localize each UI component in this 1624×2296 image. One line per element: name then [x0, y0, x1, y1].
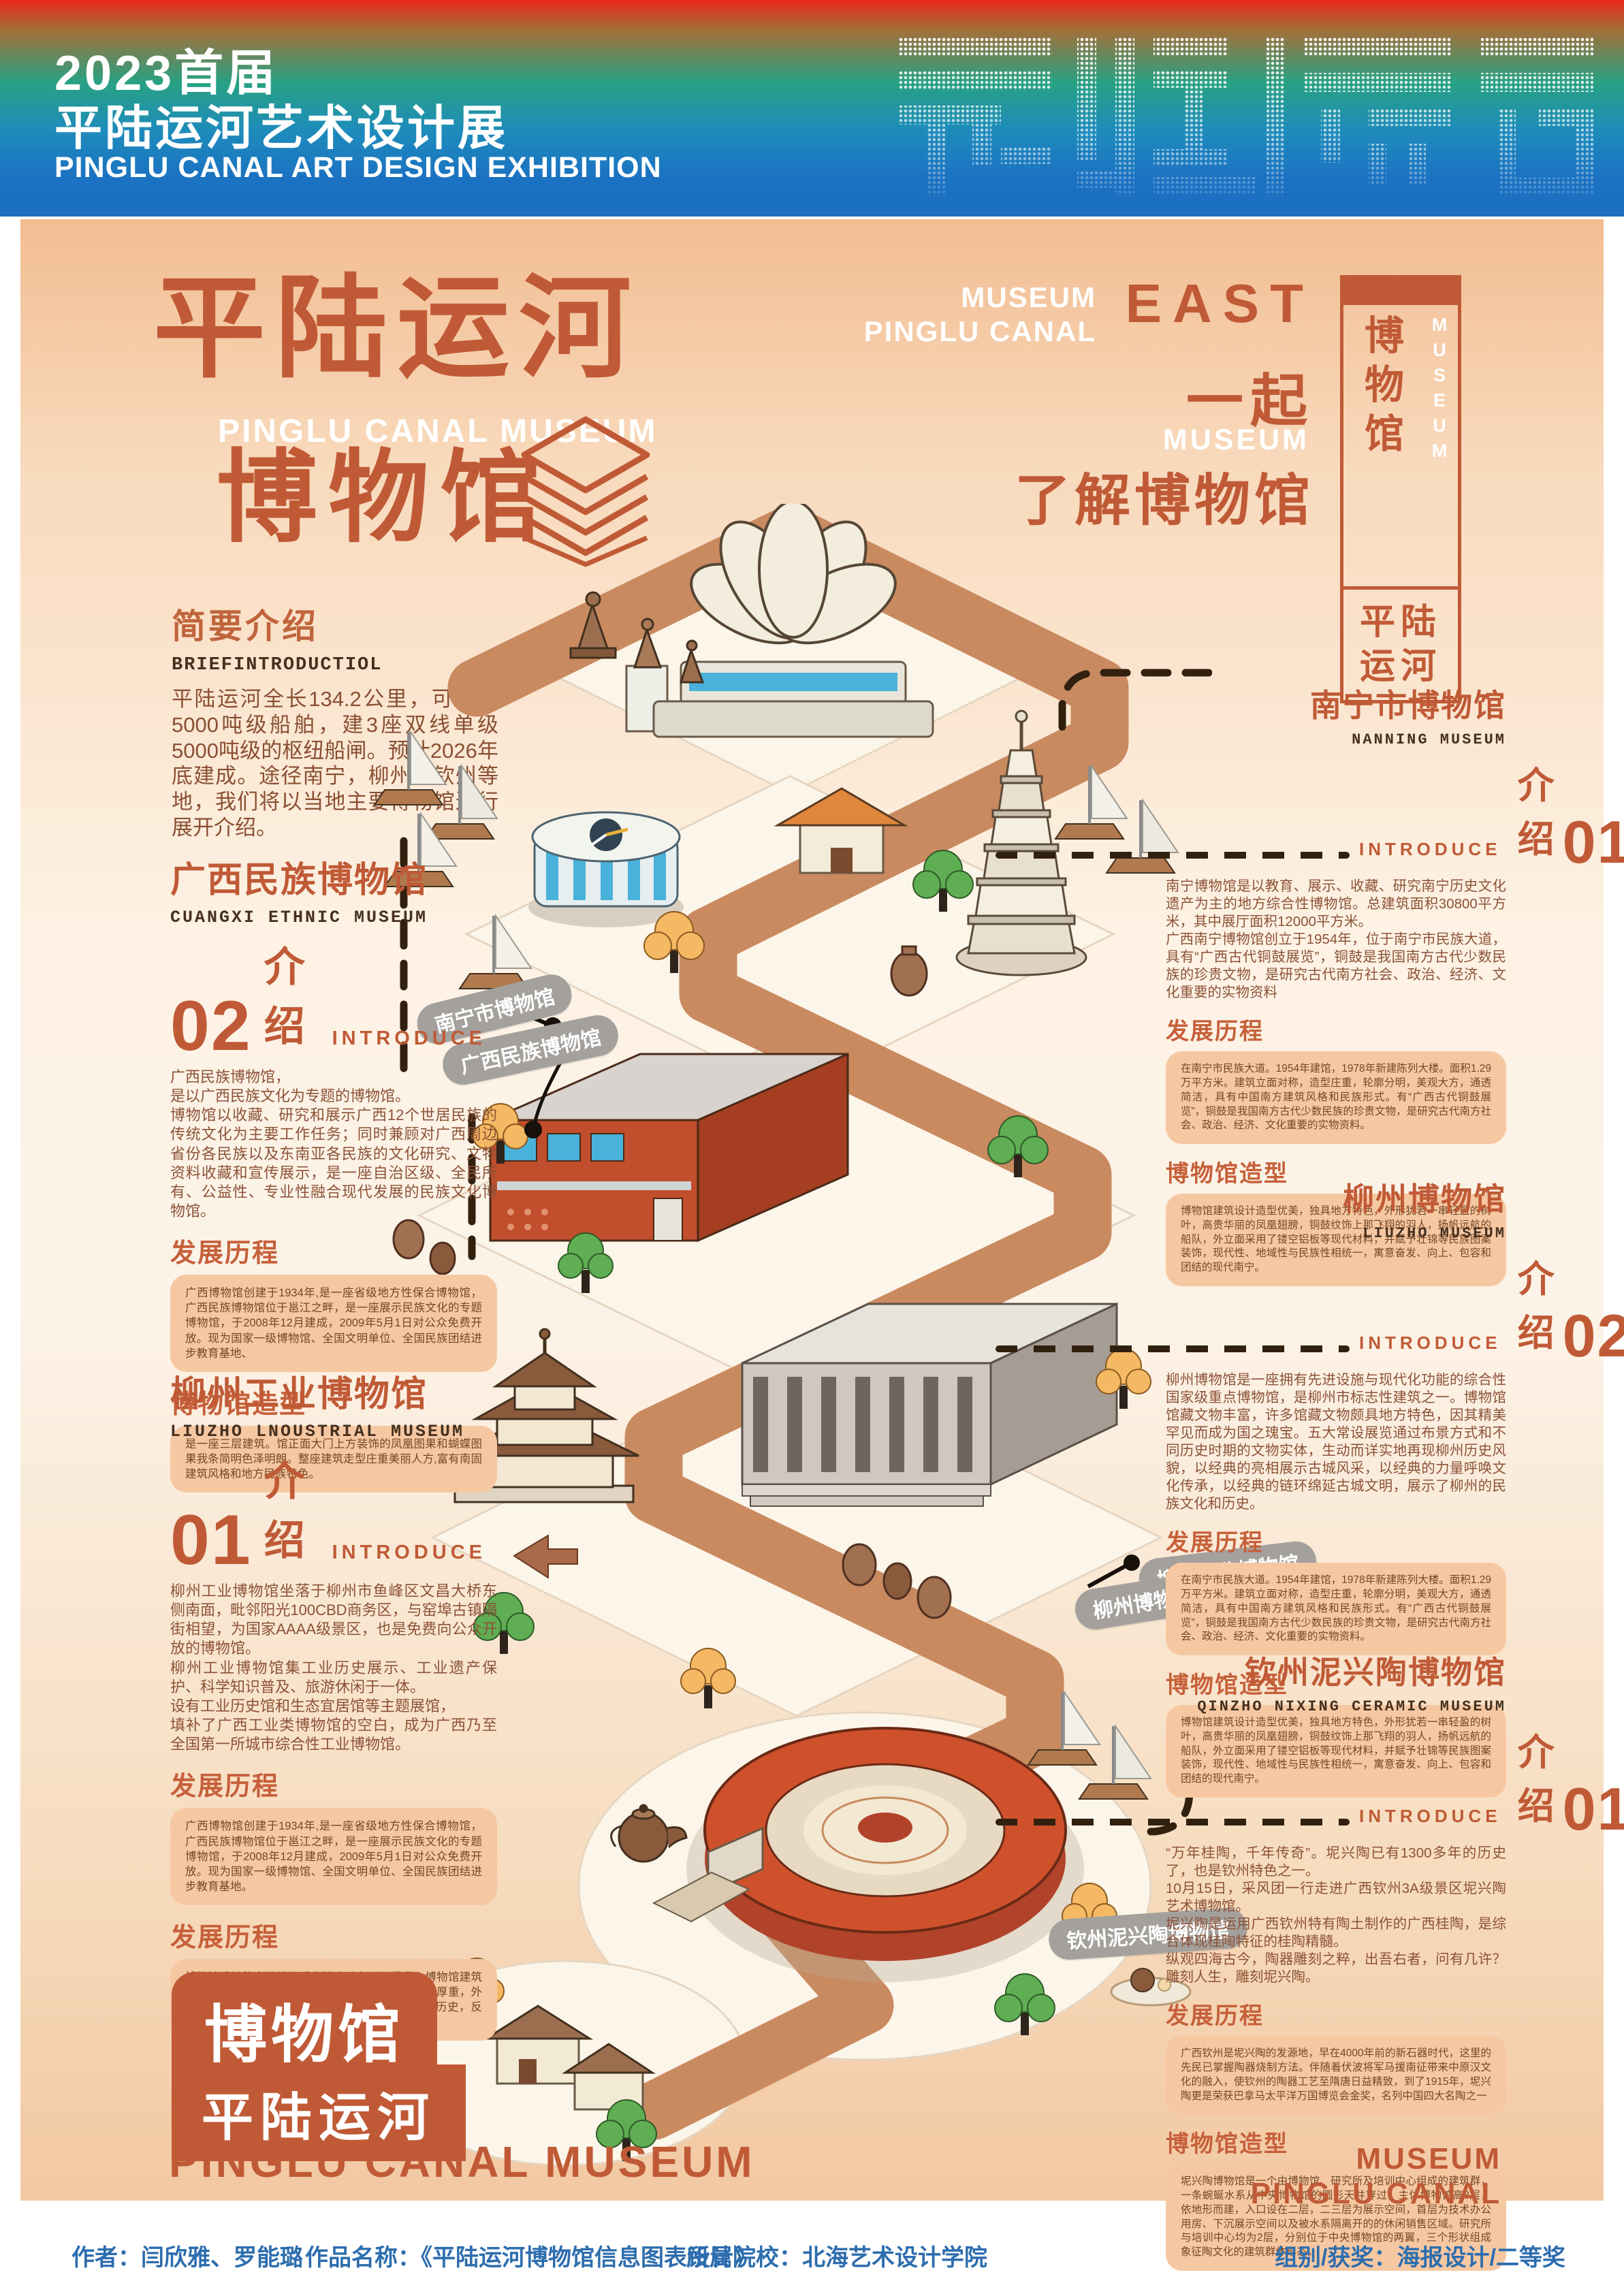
section-body: 南宁博物馆是以教育、展示、收藏、研究南宁历史文化遗产为主的地方综合性博物馆。总建… [1166, 878, 1506, 1002]
exhibition-subtitle-en: PINGLU CANAL ART DESIGN EXHIBITION [54, 151, 662, 185]
credit-author: 作者：闫欣雅、罗能璐 [71, 2239, 303, 2272]
section-number: 01 [1563, 1783, 1624, 1835]
poster-page: 2023首届 平陆运河艺术设计展 PINGLU CANAL ART DESIGN… [0, 0, 1624, 2296]
intro-label-cn: 介绍 [264, 934, 324, 1053]
credit-author-label: 作者： [71, 2245, 141, 2271]
block-text-box: 在南宁市民族大道。1954年建馆，1978年新建陈列大楼。面积1.29万平方米。… [1166, 1051, 1506, 1144]
section-subtitle-en: CUANGXI ETHNIC MUSEUM [170, 908, 497, 927]
section-title: 柳州工业博物馆 [170, 1365, 497, 1416]
section-number: 01 [1563, 816, 1624, 868]
block-heading: 发展历程 [1166, 1013, 1506, 1046]
section-subtitle-en: LIUZHO LNOUSTRIAL MUSEUM [170, 1422, 497, 1441]
section-body: 柳州博物馆是一座拥有先进设施与现代化功能的综合性国家级重点博物馆，是柳州市标志性… [1166, 1371, 1506, 1513]
block-heading: 发展历程 [1166, 1997, 1506, 2030]
dashed-line [996, 1819, 1350, 1825]
section-body: 广西民族博物馆， 是以广西民族文化为专题的博物馆。 博物馆以收藏、研究和展示广西… [170, 1068, 497, 1221]
intro-label-en: INTRODUCE [332, 1027, 486, 1050]
intro-number-row: INTRODUCE 介绍 01 [1166, 755, 1506, 868]
intro-label-cn: 介绍 [1518, 1722, 1555, 1830]
hero-museum-small-label: MUSEUM [1163, 424, 1309, 457]
block-heading: 发展历程 [1166, 1524, 1506, 1557]
hero-museum-line1: MUSEUM [864, 281, 1096, 315]
section-subtitle-en: QINZHO NIXING CERAMIC MUSEUM [1166, 1698, 1506, 1715]
exhibition-title: 平陆运河艺术设计展 [54, 90, 508, 159]
block-text-box: 广西博物馆创建于1934年,是一座省级地方性保合博物馆，广西民族博物馆位于邕江之… [170, 1275, 497, 1372]
section-subtitle-en: NANNING MUSEUM [1166, 731, 1506, 748]
intro-label-cn: 介绍 [264, 1448, 324, 1567]
block-text-box: 广西博物馆创建于1934年,是一座省级地方性保合博物馆，广西民族博物馆位于邕江之… [170, 1808, 497, 1905]
block-heading: 发展历程 [170, 1916, 497, 1954]
section-title: 柳州博物馆 [1166, 1175, 1506, 1219]
bronze-drum-building [528, 812, 684, 927]
bottom-museum-en: PINGLU CANAL MUSEUM [169, 2137, 755, 2187]
credit-school-label: 所属院校： [686, 2245, 802, 2271]
section-number: 01 [170, 1510, 252, 1572]
section-number: 02 [170, 995, 252, 1058]
dashed-line [996, 1345, 1350, 1352]
banner-top-bar [1340, 275, 1461, 305]
section-title: 钦州泥兴陶博物馆 [1166, 1648, 1506, 1693]
hero-museum-line2: PINGLU CANAL [864, 315, 1096, 349]
dashed-line [996, 852, 1350, 859]
intro-number-row: 01 介绍 INTRODUCE [170, 1448, 497, 1572]
block-heading: 发展历程 [170, 1765, 497, 1802]
credit-work-label: 作品名称： [305, 2245, 421, 2271]
intro-label-en: INTRODUCE [1359, 1333, 1501, 1354]
intro-label-en: INTRODUCE [1359, 839, 1501, 860]
intro-number-row: INTRODUCE 介绍 01 [1166, 1722, 1506, 1835]
intro-number-row: 02 介绍 INTRODUCE [170, 934, 497, 1058]
intro-label-cn: 介绍 [1518, 755, 1555, 863]
section-body: 柳州工业博物馆坐落于柳州市鱼峰区文昌大桥东侧南面，毗邻阳光100CBD商务区，与… [170, 1582, 497, 1754]
banner-museum-cn: 博物馆 [1352, 315, 1409, 577]
block-text-box: 广西钦州是坭兴陶的发源地，早在4000年前的新石器时代，这里的先民已掌握陶器烧制… [1166, 2036, 1506, 2114]
bottom-right-line2: PINGLU CANAL [1251, 2177, 1501, 2212]
intro-label-cn: 介绍 [1518, 1249, 1555, 1356]
section-title: 南宁市博物馆 [1166, 681, 1506, 726]
block-text-box: 在南宁市民族大道。1954年建馆，1978年新建陈列大楼。面积1.29万平方米。… [1166, 1563, 1506, 1655]
intro-label-en: INTRODUCE [1359, 1806, 1501, 1827]
bottom-right-line1: MUSEUM [1251, 2142, 1501, 2177]
bottom-right-museum-label: MUSEUM PINGLU CANAL [1251, 2142, 1501, 2211]
credit-school: 所属院校：北海艺术设计学院 [686, 2239, 987, 2272]
credit-school-value: 北海艺术设计学院 [802, 2245, 987, 2271]
section-liuzhou-industrial-museum: 柳州工业博物馆 LIUZHO LNOUSTRIAL MUSEUM 01 介绍 I… [170, 1365, 497, 2041]
section-number: 02 [1563, 1309, 1624, 1362]
credit-author-value: 闫欣雅、罗能璐 [141, 2245, 303, 2271]
hero-east-label: EAST [1126, 272, 1314, 335]
pinglu-canal-halftone-logotype-icon [899, 37, 1593, 197]
banner-main-box: 博物馆 MUSEUM [1340, 305, 1461, 590]
section-subtitle-en: LIUZHO MUSEUM [1166, 1225, 1506, 1242]
hero-museum-pinglu-label: MUSEUM PINGLU CANAL [864, 281, 1096, 348]
intro-number-row: INTRODUCE 介绍 02 [1166, 1249, 1506, 1362]
exhibition-header: 2023首届 平陆运河艺术设计展 PINGLU CANAL ART DESIGN… [0, 0, 1624, 217]
section-title: 广西民族博物馆 [170, 851, 497, 902]
credit-award-value: 海报设计/二等奖 [1397, 2245, 1565, 2271]
intro-label-en: INTRODUCE [332, 1542, 486, 1564]
banner-museum-en: MUSEUM [1429, 315, 1450, 577]
credit-award: 组别/获奖：海报设计/二等奖 [1275, 2239, 1565, 2272]
block-heading: 发展历程 [170, 1232, 497, 1269]
section-body: “万年桂陶，千年传奇”。坭兴陶已有1300多年的历史了，也是钦州特色之一。 10… [1166, 1845, 1506, 1986]
vertical-side-banner: 博物馆 MUSEUM 平陆 运河 [1340, 275, 1461, 703]
poster-main-title: 平陆运河 [153, 271, 641, 385]
credit-award-label: 组别/获奖： [1275, 2245, 1397, 2271]
